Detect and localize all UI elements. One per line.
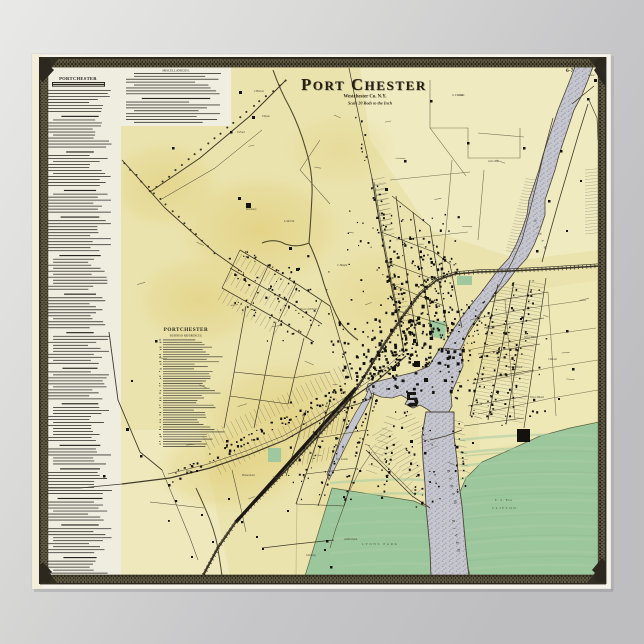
svg-text:Westchester Co. N.Y.: Westchester Co. N.Y.: [343, 95, 386, 100]
svg-text:Old Lands: Old Lands: [336, 458, 348, 461]
svg-text:Mill: Mill: [185, 470, 191, 473]
svg-text:L.Merritt: L.Merritt: [283, 220, 295, 223]
svg-text:BUSINESS REFERENCES.: BUSINESS REFERENCES.: [170, 335, 202, 338]
svg-text:Mrs.A.Blood: Mrs.A.Blood: [507, 366, 523, 369]
svg-text:A.Merchant: A.Merchant: [343, 538, 357, 541]
svg-text:F.Ryan: F.Ryan: [261, 115, 270, 118]
svg-text:PORTCHESTER: PORTCHESTER: [164, 327, 209, 333]
svg-text:G.T.Smith: G.T.Smith: [452, 94, 464, 97]
svg-text:CLIFTON: CLIFTON: [492, 506, 517, 510]
svg-text:C.Haight: C.Haight: [337, 264, 348, 267]
svg-text:J.Blood: J.Blood: [548, 358, 557, 361]
svg-text:Scale 20 Rods to the Inch: Scale 20 Rods to the Inch: [348, 101, 393, 106]
svg-text:Seminary: Seminary: [246, 208, 257, 211]
svg-text:PORTCHESTER: PORTCHESTER: [59, 76, 97, 81]
svg-text:PORT CHESTER: PORT CHESTER: [301, 75, 427, 94]
svg-text:6-7: 6-7: [566, 68, 574, 74]
svg-text:Homestead: Homestead: [241, 474, 255, 477]
svg-text:S.Deling: S.Deling: [306, 554, 316, 557]
svg-text:J.Horton: J.Horton: [254, 90, 265, 93]
svg-text:LYONS PARK: LYONS PARK: [362, 542, 399, 546]
svg-text:Trust of H.Sale: Trust of H.Sale: [300, 308, 318, 311]
svg-text:Wm.J.Blood: Wm.J.Blood: [530, 396, 544, 399]
svg-text:house: house: [588, 74, 595, 77]
svg-text:MISCELLANEOUS.: MISCELLANEOUS.: [162, 69, 190, 73]
svg-text:E.Park: E.Park: [236, 131, 246, 134]
svg-text:Wm.J.Blood: Wm.J.Blood: [524, 336, 538, 339]
svg-text:E. A. Bow: E. A. Bow: [495, 499, 513, 502]
